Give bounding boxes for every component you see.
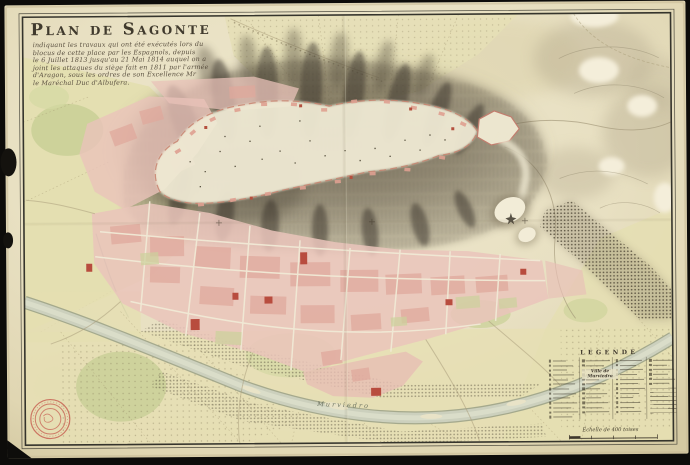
scanned-map-sheet: Plan de Sagonte indiquant les travaux qu… [0, 0, 690, 463]
map-artwork [0, 0, 690, 463]
